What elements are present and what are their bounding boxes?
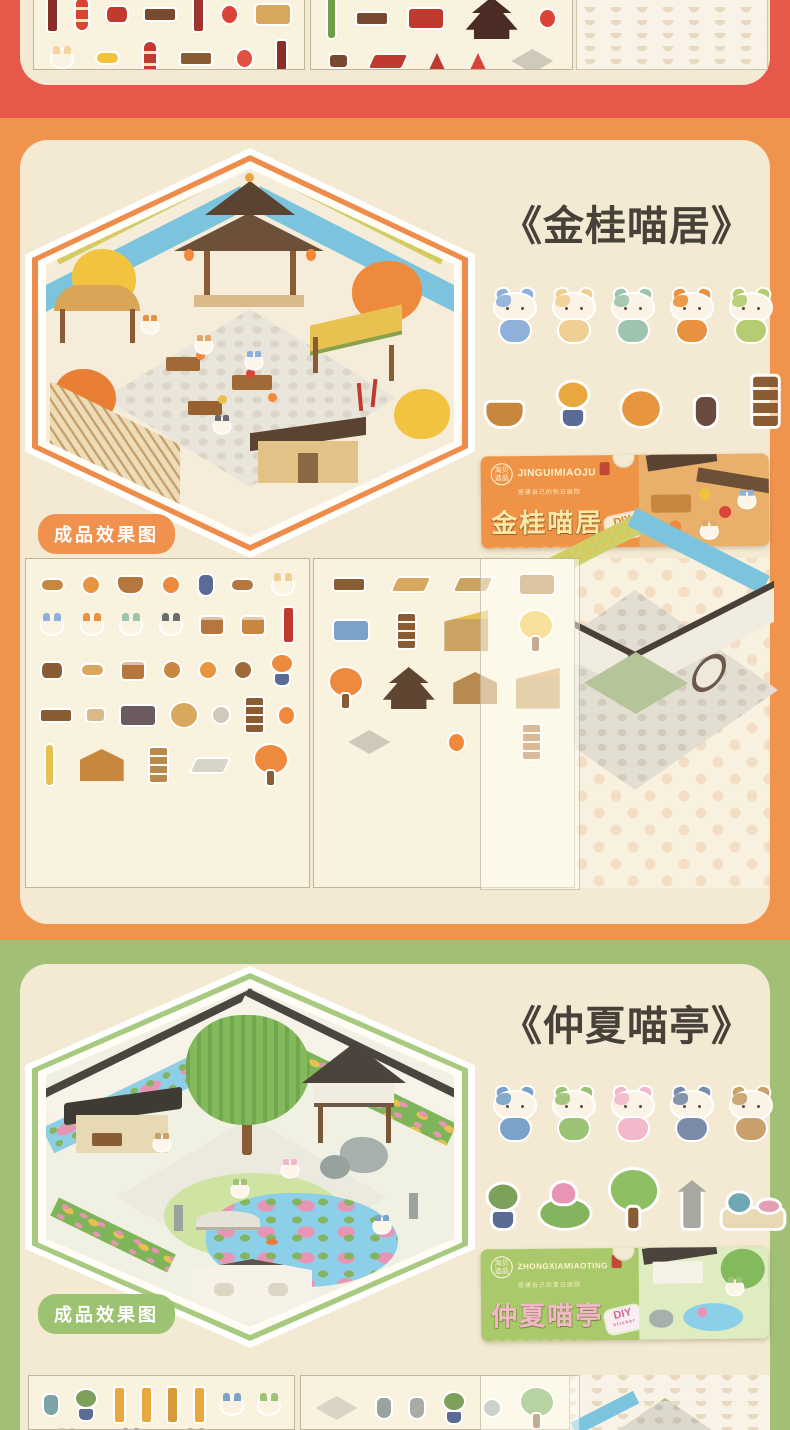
- wall-window: [268, 1283, 288, 1296]
- thumb-table: [651, 494, 691, 512]
- sticker: [97, 53, 118, 63]
- scene-cat: [214, 419, 230, 433]
- banquet-table: [166, 357, 200, 371]
- sticker: [256, 5, 290, 24]
- sticker: [409, 9, 443, 28]
- sticker: [145, 9, 175, 20]
- sticker: [41, 710, 71, 721]
- sticker: [334, 621, 368, 640]
- product-detail-page: 《金桂喵居》: [0, 0, 790, 1430]
- autumn-cat-sticker-row: [492, 286, 774, 344]
- sticker: [443, 1393, 465, 1423]
- sticker: [181, 53, 211, 64]
- sticker: [540, 10, 555, 27]
- cat-patch-icon: [614, 1093, 629, 1105]
- sticker: [392, 578, 430, 591]
- thumb-wall: [653, 1261, 703, 1284]
- scene-cat: [142, 319, 158, 333]
- sticker: [398, 614, 415, 648]
- gazebo-band: [314, 1083, 394, 1107]
- arched-stall-post: [130, 309, 135, 343]
- brand-tagline: 搭建自己的秋日庭院: [518, 489, 581, 496]
- sticker: [194, 0, 203, 31]
- thumb-food: [719, 506, 731, 518]
- pavilion-finial: [245, 173, 254, 182]
- item-sticker: [540, 1199, 589, 1228]
- summer-room-base: [560, 1390, 770, 1430]
- sticker: [107, 7, 127, 22]
- thumb-cat: [739, 494, 755, 508]
- sticker: [213, 707, 229, 723]
- cat-sticker: [728, 288, 774, 344]
- sticker: [253, 745, 289, 785]
- brand-pinyin: ZHONGXIAMIAOTING: [518, 1261, 608, 1271]
- sticker: [357, 13, 387, 24]
- cat-body-icon: [500, 320, 530, 342]
- cat-body-icon: [618, 1118, 648, 1140]
- pavilion-posts: [290, 247, 296, 299]
- summer-scene-image[interactable]: [25, 966, 475, 1348]
- cat-patch-icon: [673, 295, 688, 307]
- sticker: [52, 50, 72, 67]
- cat-body-icon: [500, 1118, 530, 1140]
- item-sticker: [695, 397, 715, 426]
- cat-body-icon: [736, 1118, 766, 1140]
- sticker: [235, 662, 251, 678]
- wall-window: [214, 1283, 234, 1296]
- lantern: [184, 249, 194, 261]
- sticker: [42, 617, 62, 634]
- scene-cat: [232, 1183, 248, 1197]
- item-sticker: [753, 377, 778, 426]
- house-door: [298, 453, 318, 483]
- sticker: [164, 662, 180, 678]
- scene-cat: [374, 1219, 390, 1233]
- sticker: [200, 662, 216, 678]
- sticker: [242, 617, 264, 634]
- food-dish: [268, 393, 277, 402]
- cat-body-icon: [677, 320, 707, 342]
- sticker-sheet-partial-2: [310, 0, 573, 70]
- summer-translucent-sheet: [480, 1375, 580, 1430]
- pavilion-posts: [204, 247, 210, 299]
- summer-cat-sticker-row: [492, 1084, 774, 1142]
- sticker: [171, 703, 197, 727]
- summer-sticker-sheet-1: [28, 1375, 295, 1430]
- sticker: [163, 577, 179, 593]
- seal-stamp-icon: [600, 462, 610, 475]
- ginkgo-tree: [394, 389, 450, 439]
- cat-sticker: [610, 1086, 656, 1142]
- stone-lantern: [174, 1205, 183, 1231]
- item-sticker: [557, 383, 589, 427]
- yellow-stall-post: [389, 345, 394, 381]
- sticker: [284, 608, 293, 642]
- sticker: [222, 6, 237, 23]
- sticker: [377, 1398, 391, 1418]
- package-text-block: 淘贝造品ZHONGXIAMIAOTING 搭建自己的夏日庭院 仲夏喵亭 喵趣闲阅…: [481, 1248, 640, 1342]
- cat-sticker: [551, 288, 597, 344]
- sticker: [121, 617, 141, 634]
- sticker: [279, 707, 294, 724]
- autumn-sticker-sheet-1: [25, 558, 310, 888]
- sticker: [144, 42, 156, 70]
- sticker: [369, 55, 407, 68]
- thumb-cat: [727, 1281, 743, 1295]
- sticker: [328, 0, 335, 38]
- cat-sticker: [492, 288, 538, 344]
- brand-pinyin: JINGUIMIAOJU: [518, 467, 596, 479]
- sticker: [470, 53, 486, 70]
- cat-sticker: [669, 1086, 715, 1142]
- gazebo-post: [318, 1103, 323, 1143]
- sticker: [122, 662, 144, 679]
- sticker: [429, 53, 445, 70]
- sticker: [168, 1388, 177, 1422]
- sticker: [121, 706, 155, 725]
- garden-rock: [320, 1155, 350, 1179]
- autumn-title: 《金桂喵居》: [472, 192, 782, 252]
- sticker: [222, 1397, 242, 1414]
- sticker: [150, 748, 167, 782]
- cat-sticker: [728, 1086, 774, 1142]
- lantern: [306, 249, 316, 261]
- summer-title: 《仲夏喵亭》: [472, 992, 782, 1052]
- summer-item-sticker-row: [492, 1166, 774, 1228]
- sticker: [42, 580, 63, 590]
- sticker: [237, 50, 252, 67]
- thumb-cat: [702, 524, 718, 538]
- cat-body-icon: [618, 320, 648, 342]
- summer-finished-label: 成品效果图: [38, 1294, 175, 1334]
- sticker: [83, 577, 99, 593]
- sticker: [449, 734, 464, 751]
- sticker: [410, 1398, 424, 1418]
- brand-tagline: 搭建自己的夏日庭院: [518, 1282, 581, 1289]
- cat-patch-icon: [496, 1093, 511, 1105]
- left-pavilion-table: [92, 1133, 122, 1146]
- sticker: [80, 749, 124, 781]
- cat-sticker: [610, 288, 656, 344]
- sticker: [511, 49, 553, 70]
- sticker: [259, 1397, 279, 1414]
- sticker: [191, 759, 229, 772]
- cat-sticker: [551, 1086, 597, 1142]
- sticker: [334, 579, 364, 590]
- scene-cat: [196, 339, 212, 353]
- scene-cat: [282, 1163, 298, 1177]
- sticker: [76, 0, 88, 30]
- sticker: [195, 1388, 204, 1422]
- item-sticker: [622, 391, 660, 426]
- sticker: [246, 698, 263, 732]
- sticker: [383, 667, 435, 709]
- autumn-item-sticker-row: [492, 364, 774, 426]
- cat-patch-icon: [614, 295, 629, 307]
- sticker: [87, 709, 104, 721]
- sticker: [142, 1388, 151, 1422]
- cat-body-icon: [677, 1118, 707, 1140]
- sticker: [46, 745, 53, 785]
- cat-patch-icon: [673, 1093, 688, 1105]
- sticker: [44, 1395, 58, 1415]
- sticker: [232, 580, 253, 590]
- summer-package-image[interactable]: 淘贝造品ZHONGXIAMIAOTING 搭建自己的夏日庭院 仲夏喵亭 喵趣闲阅…: [481, 1246, 770, 1341]
- item-sticker: [723, 1209, 784, 1228]
- thumb-pond: [683, 1303, 743, 1332]
- brand-logo: 淘贝造品: [491, 1256, 513, 1278]
- stone-lantern: [409, 1193, 418, 1219]
- food-dish: [246, 369, 255, 378]
- sticker: [316, 1396, 358, 1420]
- autumn-translucent-sheet: [480, 558, 580, 890]
- package-scene-thumbnail: [639, 1246, 770, 1339]
- sticker: [42, 663, 62, 678]
- sticker: [277, 41, 286, 70]
- brand-logo: 淘贝造品: [491, 463, 513, 485]
- thumb-food: [699, 488, 711, 500]
- sticker: [328, 668, 364, 708]
- cat-sticker: [669, 288, 715, 344]
- cat-patch-icon: [496, 295, 511, 307]
- cat-sticker: [492, 1086, 538, 1142]
- scene-cat: [246, 355, 262, 369]
- cat-patch-icon: [732, 1093, 747, 1105]
- scene-cat: [154, 1137, 170, 1151]
- pattern-paper-sheet: [576, 0, 768, 70]
- arched-stall-roof: [54, 285, 140, 311]
- sticker: [273, 577, 293, 594]
- yellow-stall-post: [313, 337, 318, 373]
- sticker: [201, 617, 223, 634]
- sticker-sheet-partial-1: [33, 0, 305, 70]
- sticker: [271, 655, 293, 685]
- arched-stall-post: [60, 309, 65, 343]
- banquet-table: [188, 401, 222, 415]
- item-sticker: [683, 1190, 700, 1228]
- item-sticker: [486, 403, 522, 426]
- sticker: [161, 617, 181, 634]
- sticker: [115, 1388, 124, 1422]
- sticker: [330, 55, 347, 67]
- thumb-rock: [650, 1309, 674, 1327]
- item-sticker: [487, 1185, 519, 1229]
- cat-body-icon: [559, 320, 589, 342]
- thumb-tree: [721, 1249, 765, 1289]
- cat-body-icon: [559, 1118, 589, 1140]
- sticker: [48, 0, 57, 31]
- cat-body-icon: [736, 320, 766, 342]
- cat-patch-icon: [555, 1093, 570, 1105]
- cat-patch-icon: [732, 295, 747, 307]
- sticker: [118, 577, 143, 593]
- sticker: [348, 730, 390, 754]
- sticker: [75, 1390, 97, 1420]
- cat-patch-icon: [555, 295, 570, 307]
- pavilion-base: [194, 295, 304, 307]
- autumn-finished-label: 成品效果图: [38, 514, 175, 554]
- sticker: [466, 0, 518, 39]
- sticker: [82, 665, 103, 675]
- willow-canopy: [186, 1015, 310, 1125]
- item-sticker: [608, 1170, 660, 1228]
- food-dish: [218, 395, 227, 404]
- sticker: [199, 575, 213, 595]
- gazebo-post: [386, 1103, 391, 1143]
- stone-bridge: [196, 1211, 260, 1230]
- koi-fish: [266, 1239, 278, 1245]
- autumn-scene-image[interactable]: [25, 148, 475, 558]
- sticker: [82, 617, 102, 634]
